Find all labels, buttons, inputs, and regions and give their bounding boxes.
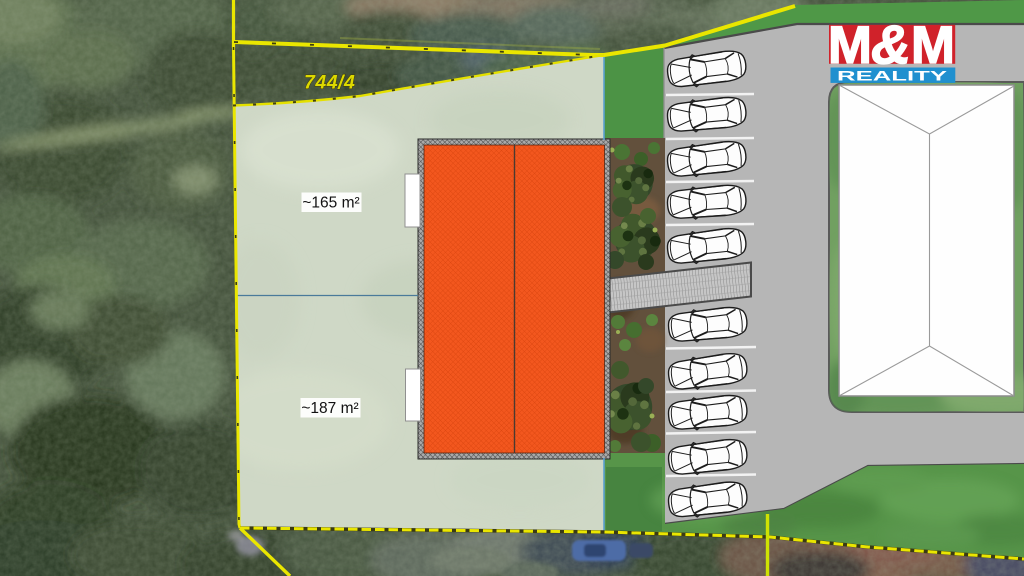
svg-text:M: M xyxy=(911,16,955,75)
svg-text:744/4: 744/4 xyxy=(304,72,355,94)
svg-text:&: & xyxy=(871,14,911,76)
svg-text:M: M xyxy=(828,16,872,75)
svg-text:~165 m²: ~165 m² xyxy=(302,195,359,212)
svg-text:REALITY: REALITY xyxy=(837,68,948,84)
svg-text:~187 m²: ~187 m² xyxy=(301,400,358,417)
